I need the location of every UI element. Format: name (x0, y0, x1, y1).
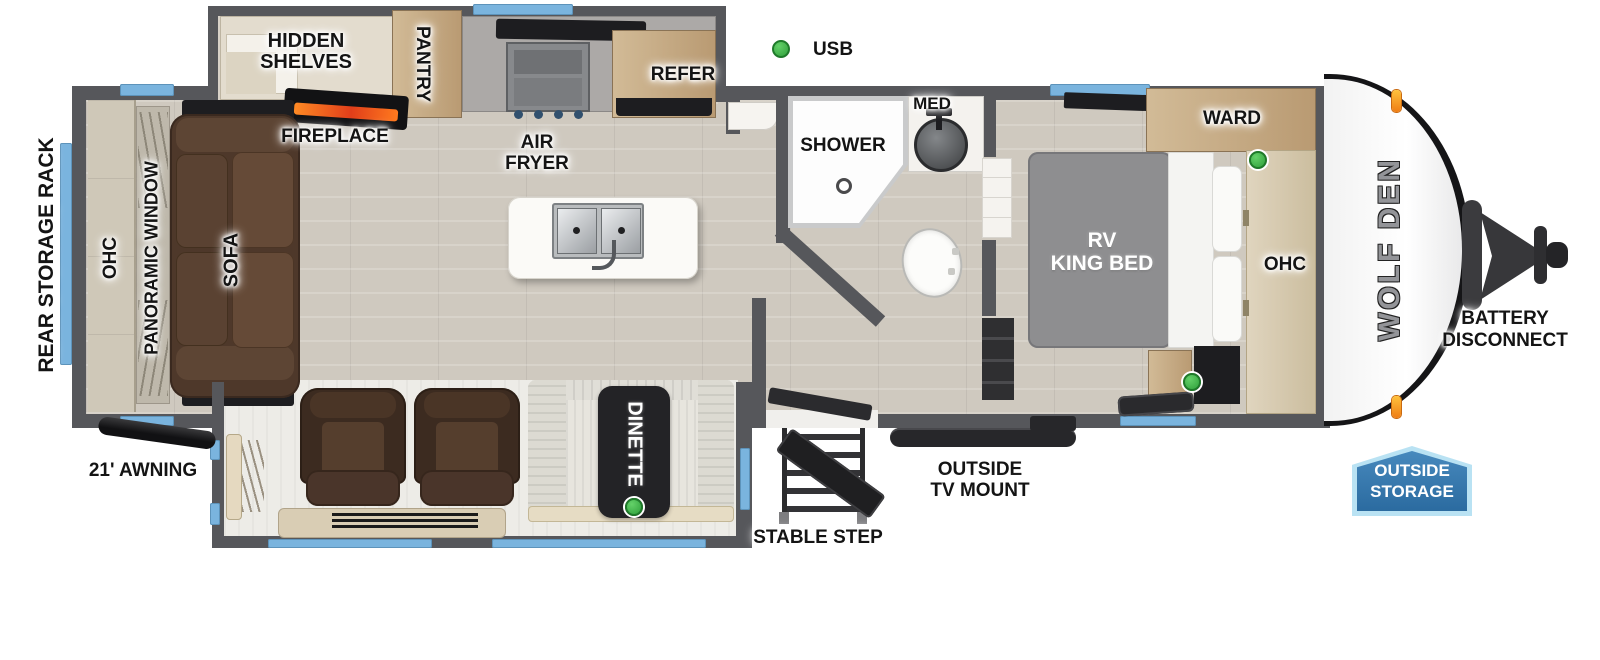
usb-legend-dot (772, 40, 790, 58)
burner-knob (534, 110, 543, 119)
rear-ohc-label: OHC (100, 237, 122, 279)
clearance-light-bottom (1392, 396, 1401, 418)
rv-floorplan: WOLF DEN DINETTE OUTSID (0, 0, 1600, 660)
bath-left-wall (776, 95, 790, 243)
outside-storage-badge: OUTSIDE STORAGE (1352, 446, 1472, 516)
usb-port-dot (1183, 373, 1201, 391)
burner-knob (514, 110, 523, 119)
panoramic-window-label: PANORAMIC WINDOW (142, 161, 163, 355)
usb-legend-label: USB (813, 39, 853, 61)
bedroom-steps (982, 318, 1014, 400)
bath-faucet-stem (936, 114, 942, 130)
bed-pillow (1212, 256, 1242, 342)
shower-label: SHOWER (800, 135, 886, 157)
sink-drain (573, 227, 580, 234)
outside-storage-line2: STORAGE (1370, 482, 1454, 502)
footrest-rails (332, 513, 478, 531)
cabinet-hinge (1243, 300, 1249, 316)
pantry-label: PANTRY (411, 26, 433, 102)
air-fryer-label: AIR FRYER (505, 132, 569, 174)
bottom-wall-front-segment (878, 414, 1320, 428)
bath-bedroom-wall-bottom (982, 240, 996, 316)
ward-label: WARD (1203, 108, 1261, 130)
linen-closet (982, 158, 1012, 238)
toilet-hinge (952, 248, 959, 255)
med-label: MED (913, 94, 951, 114)
burner-knob (554, 110, 563, 119)
dinette-label: DINETTE (623, 401, 646, 487)
rv-king-bed-label: RV KING BED (1051, 229, 1154, 275)
dinette-bench-left (528, 380, 566, 522)
kitchen-end-counter (728, 102, 778, 130)
usb-port-dot (1249, 151, 1267, 169)
dinette-bench-right (698, 380, 734, 522)
rear-wall (72, 86, 86, 428)
theater-seat-headrest (424, 392, 510, 418)
kitchen-slide-right-wall (716, 6, 726, 102)
slide-bottom-window (492, 539, 706, 548)
bedroom-bottom-window (1120, 416, 1196, 426)
air-fryer-drawer-bottom (514, 78, 582, 106)
cabinet-hinge (1243, 210, 1249, 226)
hitch-bumper (1462, 200, 1482, 310)
outside-storage-line1: OUTSIDE (1374, 461, 1450, 481)
refer-label: REFER (651, 64, 715, 86)
sink-drain (618, 227, 625, 234)
bedroom-dark-cabinet (1194, 346, 1240, 404)
outside-tv-mount-bracket (1030, 416, 1076, 431)
shower-drain (836, 178, 852, 194)
rear-top-window (120, 84, 174, 96)
rear-storage-rack-label: REAR STORAGE RACK (35, 137, 59, 372)
stable-step-label: STABLE STEP (753, 527, 883, 549)
battery-disconnect-label: BATTERY DISCONNECT (1442, 308, 1568, 352)
outside-tv-mount-label: OUTSIDE TV MOUNT (930, 459, 1029, 501)
slide-bottom-window (268, 539, 432, 548)
brand-logo: WOLF DEN (1373, 157, 1407, 341)
theater-seat-headrest (310, 392, 396, 418)
step-foot (779, 512, 789, 524)
toilet-hinge (948, 268, 955, 275)
sofa-label: SOFA (221, 233, 244, 287)
front-ohc-label: OHC (1264, 254, 1306, 276)
rear-storage-rack-bar (60, 143, 72, 365)
step-rung (787, 506, 860, 512)
bed-pillow (1212, 166, 1242, 252)
theater-seat-cushion (420, 470, 514, 506)
fireplace-label: FIREPLACE (281, 126, 389, 148)
hitch-coupler (1546, 242, 1568, 268)
entry-wall-stub (752, 298, 766, 428)
refrigerator-base (616, 98, 712, 116)
hidden-shelves-label: HIDDEN SHELVES (260, 31, 352, 73)
hitch-a-frame (1480, 212, 1540, 300)
front-ohc-cabinet (1246, 150, 1316, 414)
clearance-light-top (1392, 90, 1401, 112)
kitchen-slide-window (473, 4, 573, 15)
slide-window-blind-fan (242, 440, 264, 512)
kitchen-slide-top-wall (208, 6, 726, 16)
slide-right-window (740, 448, 750, 510)
slide-left-window (210, 503, 220, 525)
sofa-armrest-bottom (176, 346, 294, 380)
sofa-armrest-top (176, 118, 294, 152)
outside-storage-badge-inner: OUTSIDE STORAGE (1357, 451, 1467, 511)
air-fryer-drawer-top (514, 50, 582, 74)
awning-label: 21' AWNING (89, 460, 197, 482)
bath-bedroom-wall-top (982, 95, 996, 157)
usb-port-dot (625, 498, 643, 516)
slide-window-blind (226, 434, 242, 520)
burner-knob (574, 110, 583, 119)
theater-seat-cushion (306, 470, 400, 506)
bed-blanket (1168, 152, 1214, 348)
